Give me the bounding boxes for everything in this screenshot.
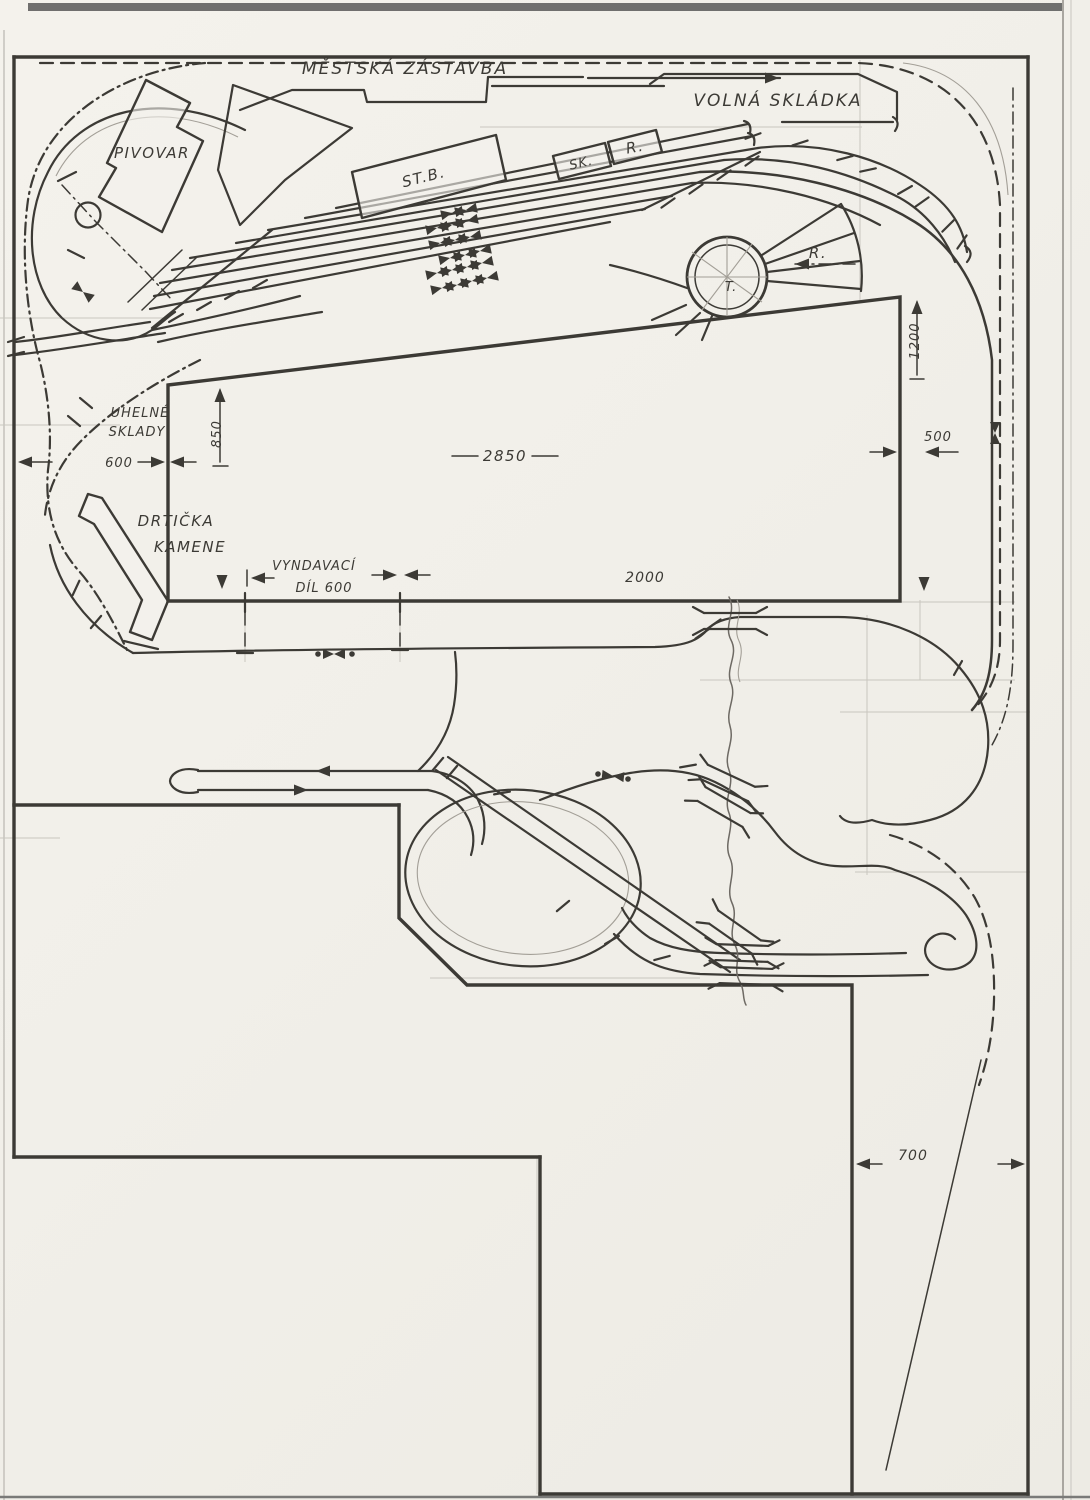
exit-curve-c <box>692 183 880 225</box>
depot-fan-arc <box>841 204 862 291</box>
yard-track-7 <box>160 196 672 283</box>
dim-700-text: 700 <box>898 1148 928 1164</box>
dim-1200-text: 1200 <box>908 322 923 359</box>
rail-gap4-icon <box>71 281 94 302</box>
diagonal-double-track <box>436 757 740 972</box>
stub-to-main-curve <box>418 652 456 771</box>
board-edge-notch <box>399 805 852 1494</box>
label-vyndavaci-2: DÍL 600 <box>295 580 352 596</box>
station-yard <box>150 117 992 710</box>
removable-section-dashes <box>245 612 400 648</box>
label-drticka-1: DRTIČKA <box>138 511 215 530</box>
exit-curve-b <box>724 159 955 262</box>
label-mestska-zastavba: MĚSTSKÁ ZÁSTAVBA <box>302 57 508 79</box>
coal-siding-marks <box>68 398 92 426</box>
stub-double-track <box>198 771 432 790</box>
scanned-track-plan: MĚSTSKÁ ZÁSTAVBA VOLNÁ SKLÁDKA PIVOVAR S… <box>0 0 1090 1500</box>
stub-to-loop-curve-2 <box>428 790 473 855</box>
hidden-track-dashed <box>25 63 1013 1470</box>
hidden-secondary-right <box>992 88 1013 745</box>
label-r-depot: R. <box>809 244 827 262</box>
mid-balloon-loop <box>133 617 988 825</box>
border-joint-ticks <box>8 337 24 356</box>
pencil-guides <box>0 60 1030 1494</box>
scan-top-strip <box>28 3 1062 11</box>
lower-tracks <box>50 281 1000 978</box>
corner-arc-pencil <box>903 63 1008 195</box>
track-plan-drawing: MĚSTSKÁ ZÁSTAVBA VOLNÁ SKLÁDKA PIVOVAR S… <box>0 0 1090 1500</box>
stub-end-cap <box>170 769 198 793</box>
dim-2850-text: 2850 <box>483 447 527 465</box>
well-outline <box>168 297 900 601</box>
loop-exit-2 <box>158 312 322 342</box>
direction-arrow-left-icon <box>316 766 330 777</box>
board-edges <box>14 805 852 1494</box>
label-volna-skladka: VOLNÁ SKLÁDKA <box>693 89 862 111</box>
label-vyndavaci-1: VYNDAVACÍ <box>272 558 356 574</box>
label-t-turntable: T. <box>725 280 738 295</box>
label-pivovar: PIVOVAR <box>114 144 190 162</box>
room-border <box>14 57 1028 1494</box>
dim-500-text: 500 <box>924 430 952 445</box>
label-uhelne-2: SKLADY <box>109 425 166 440</box>
bridges <box>685 607 784 991</box>
turntable <box>610 204 862 340</box>
stone-crusher-end-mark <box>124 641 158 649</box>
street-wedge <box>218 85 352 225</box>
label-uhelne-1: UHELNÉ <box>111 405 170 421</box>
direction-arrow-right-icon <box>294 785 308 796</box>
label-r-building: R. <box>624 137 645 158</box>
dim-850-text: 850 <box>210 420 225 448</box>
dim-600-text: 600 <box>105 456 133 471</box>
dimension-700 <box>856 1159 1025 1170</box>
turntable-lead <box>610 265 687 288</box>
yard-ladder-right <box>642 152 760 210</box>
rail-gap2-icon <box>602 770 625 782</box>
long-guide-diagonal <box>886 1060 981 1470</box>
skladka-siding <box>782 117 898 131</box>
teardrop-return-inner <box>622 908 906 955</box>
coal-siding <box>8 337 200 515</box>
labels: MĚSTSKÁ ZÁSTAVBA VOLNÁ SKLÁDKA PIVOVAR S… <box>105 57 952 1164</box>
dim-2000-text: 2000 <box>625 570 665 586</box>
label-drticka-2: KAMENE <box>154 538 226 556</box>
